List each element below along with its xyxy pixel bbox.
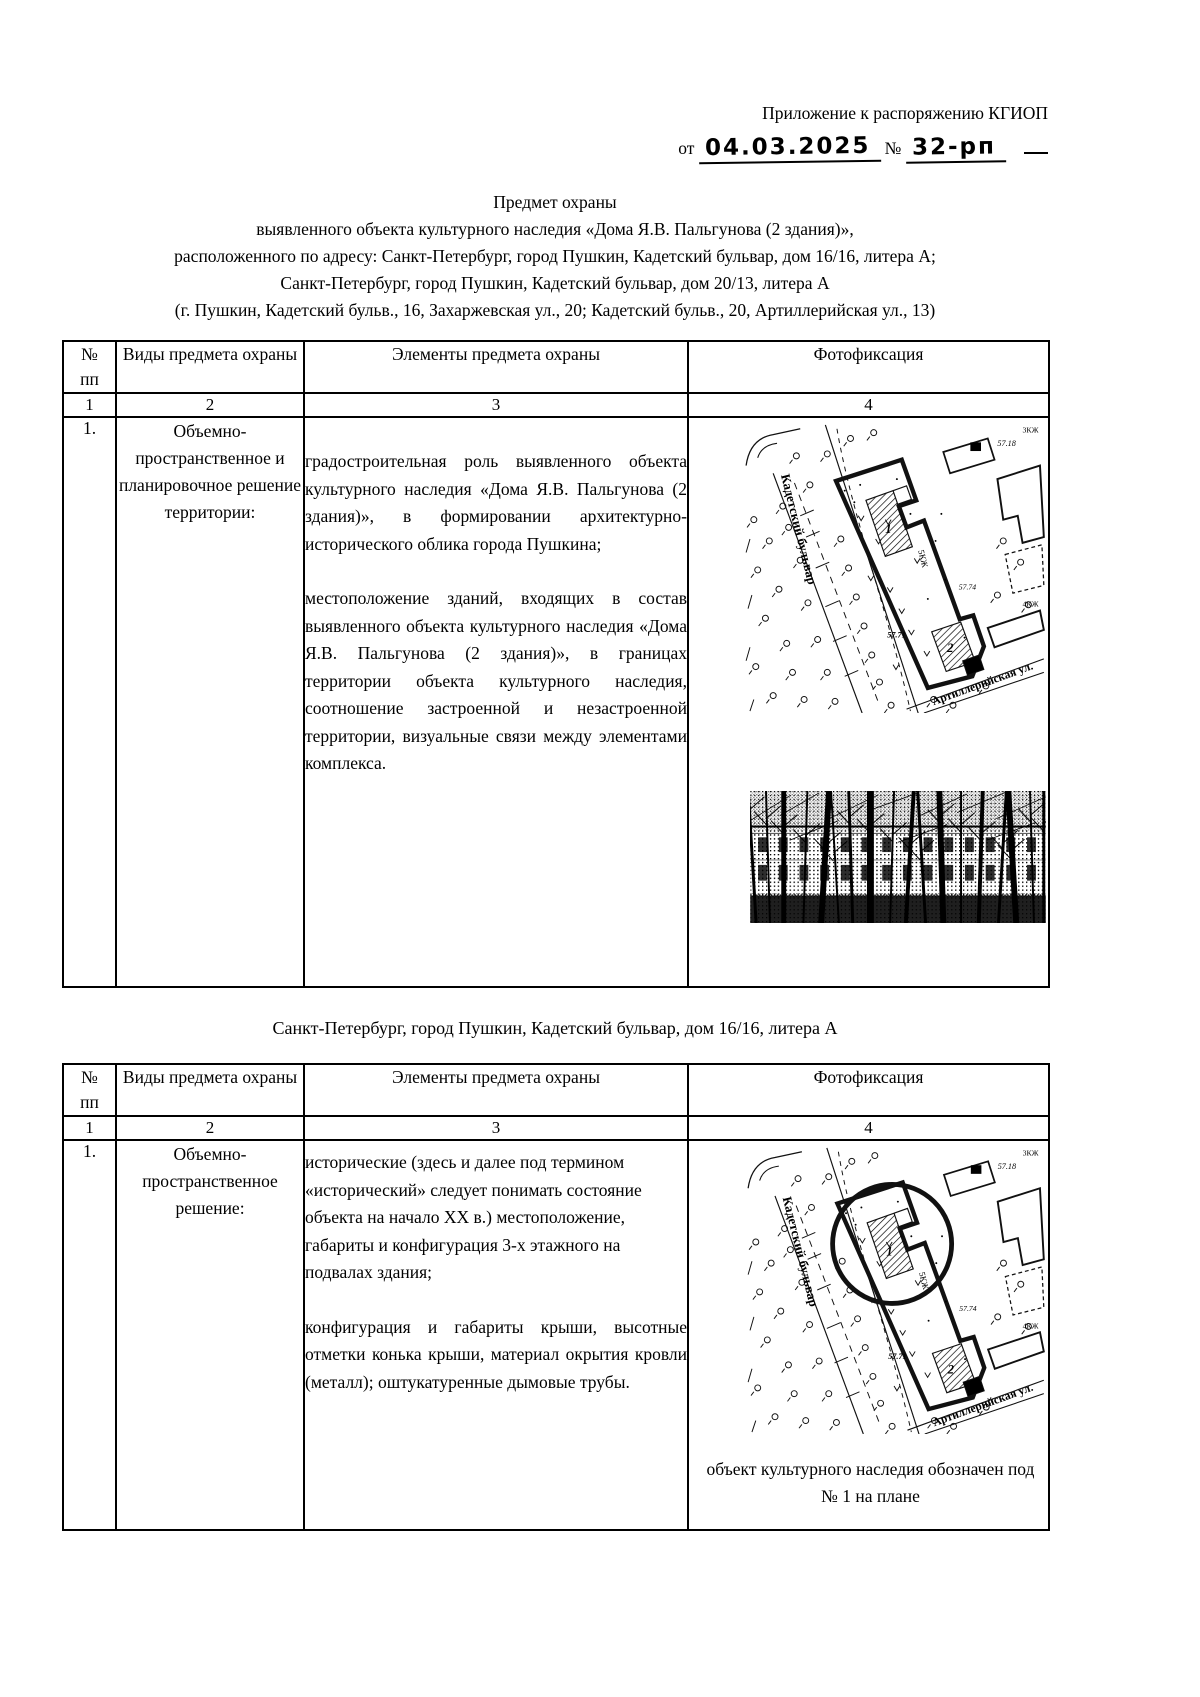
svg-text:5КЖ: 5КЖ [916,549,930,569]
svg-text:4КЖ: 4КЖ [1023,600,1039,609]
svg-text:57.74: 57.74 [959,1304,976,1313]
site-plan-map-circled: Кадетский бульварАртиллерийская ул.1257.… [745,1146,1045,1434]
col-number: 3 [304,393,688,417]
svg-text:57.71: 57.71 [887,631,905,640]
col-number: 2 [116,393,304,417]
protection-kind: Объемно-пространственное решение: [116,1140,304,1530]
protection-kind: Объемно-пространственное и планировочное… [116,417,304,987]
elements-paragraph: исторические (здесь и далее под термином… [305,1149,687,1287]
svg-text:57.18: 57.18 [998,1162,1016,1171]
table-header-row: № пп Виды предмета охраны Элементы предм… [63,341,1049,393]
column-numbers-row: 1 2 3 4 [63,393,1049,417]
svg-text:1: 1 [886,1244,892,1258]
svg-text:Кадетский бульвар: Кадетский бульвар [780,1195,822,1308]
svg-text:3КЖ: 3КЖ [1023,426,1039,435]
svg-text:3КЖ: 3КЖ [1023,1149,1039,1158]
title-line: расположенного по адресу: Санкт-Петербур… [62,243,1048,270]
col-number: 1 [63,1116,116,1140]
table-row: 1. Объемно-пространственное решение: ист… [63,1140,1049,1530]
col-header-elements: Элементы предмета охраны [304,341,688,393]
col-header-kinds: Виды предмета охраны [116,341,304,393]
svg-text:Кадетский бульвар: Кадетский бульвар [778,472,820,586]
elements-paragraph: местоположение зданий, входящих в состав… [305,585,687,778]
column-numbers-row: 1 2 3 4 [63,1116,1049,1140]
title-line: Санкт-Петербург, город Пушкин, Кадетский… [62,270,1048,297]
map-caption: объект культурного наследия обозначен по… [703,1456,1038,1510]
appendix-label: Приложение к распоряжению КГИОП [62,100,1048,126]
site-plan-map: Кадетский бульварАртиллерийская ул.1257.… [743,423,1045,713]
underline-tail [1024,138,1048,154]
order-number-handwritten: 32-рп [906,135,1006,163]
num-sub: пп [64,1090,115,1115]
col-number: 4 [688,1116,1049,1140]
col-header-elements: Элементы предмета охраны [304,1064,688,1116]
photo-cell: Кадетский бульварАртиллерийская ул.1257.… [688,1140,1049,1530]
svg-text:57.74: 57.74 [959,582,977,591]
svg-text:57.18: 57.18 [997,439,1016,448]
table-row: 1. Объемно-пространственное и планировоч… [63,417,1049,987]
col-number: 4 [688,393,1049,417]
num-sub: пп [64,367,115,392]
elements-paragraph: конфигурация и габариты крыши, высотные … [305,1314,687,1397]
building-photo [750,791,1046,923]
col-header-kinds: Виды предмета охраны [116,1064,304,1116]
section-heading: Санкт-Петербург, город Пушкин, Кадетский… [62,1018,1048,1039]
row-index: 1. [63,417,116,987]
col-number: 3 [304,1116,688,1140]
document-content: Приложение к распоряжению КГИОП от 04.03… [62,0,1048,1531]
order-date-handwritten: 04.03.2025 [699,135,881,165]
title-line: выявленного объекта культурного наследия… [62,216,1048,243]
protection-table-territory: № пп Виды предмета охраны Элементы предм… [62,340,1050,988]
document-header: Приложение к распоряжению КГИОП от 04.03… [62,100,1048,163]
protection-table-building: № пп Виды предмета охраны Элементы предм… [62,1063,1050,1531]
order-date-line: от 04.03.2025 № 32-рп [62,135,1048,163]
svg-text:57.71: 57.71 [888,1352,906,1361]
col-number: 1 [63,393,116,417]
col-number: 2 [116,1116,304,1140]
num-sign: № [64,1065,115,1090]
number-sign: № [885,138,902,158]
col-header-num: № пп [63,341,116,393]
svg-text:4КЖ: 4КЖ [1023,1321,1039,1330]
col-header-photo: Фотофиксация [688,341,1049,393]
num-sign: № [64,342,115,367]
svg-text:1: 1 [885,522,891,536]
col-header-photo: Фотофиксация [688,1064,1049,1116]
svg-text:2: 2 [946,641,953,655]
svg-text:2: 2 [947,1363,954,1377]
from-label: от [678,138,694,158]
document-page: Приложение к распоряжению КГИОП от 04.03… [0,0,1200,1697]
row-index: 1. [63,1140,116,1530]
protection-elements: градостроительная роль выявленного объек… [304,417,688,987]
title-line: Предмет охраны [62,189,1048,216]
photo-cell: Кадетский бульварАртиллерийская ул.1257.… [688,417,1049,987]
elements-paragraph: градостроительная роль выявленного объек… [305,448,687,558]
table-header-row: № пп Виды предмета охраны Элементы предм… [63,1064,1049,1116]
title-line: (г. Пушкин, Кадетский бульв., 16, Захарж… [62,297,1048,324]
document-title: Предмет охраны выявленного объекта культ… [62,189,1048,324]
protection-elements: исторические (здесь и далее под термином… [304,1140,688,1530]
col-header-num: № пп [63,1064,116,1116]
